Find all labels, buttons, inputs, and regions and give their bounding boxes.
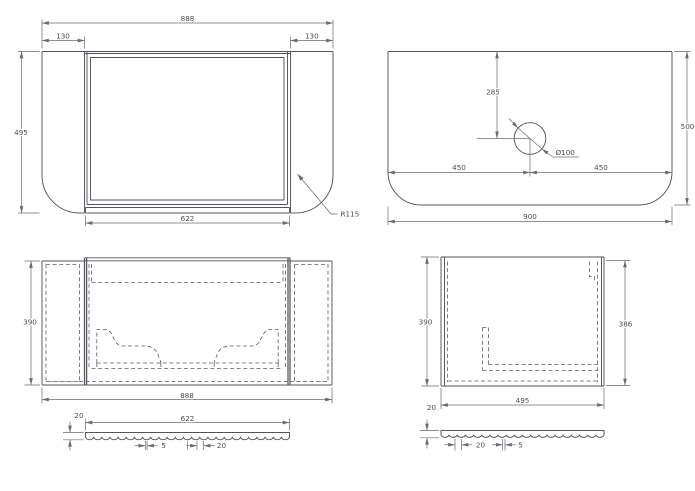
dim-front-left-panel-width: 130 — [56, 31, 70, 40]
dim-side-door-thickness: 20 — [427, 403, 437, 412]
cabinet-plan-view: 390 888 20 622 5 20 — [23, 258, 332, 451]
plan-panel-separators — [85, 258, 291, 385]
side-outline — [441, 257, 604, 386]
dim-front-right-panel-width: 130 — [305, 31, 319, 40]
dim-top-overall-width: 900 — [523, 212, 537, 221]
dim-top-450-left: 450 — [452, 163, 466, 172]
hole-dia-arrow-lower — [542, 149, 553, 157]
side-hidden-lines — [448, 262, 598, 383]
countertop-centerlines — [477, 139, 530, 177]
dim-side-inner-depth: 386 — [619, 320, 633, 329]
countertop-view: 285 Ø100 450 450 900 500 — [388, 52, 695, 226]
dim-top-hole-diameter: Ø100 — [556, 148, 576, 157]
dim-plan-flute-width: 20 — [217, 441, 227, 450]
dim-front-overall-height: 495 — [14, 128, 28, 137]
technical-drawing-page: 888 130 130 495 622 R115 285 Ø100 450 45… — [0, 0, 695, 491]
dim-plan-depth: 390 — [23, 318, 37, 327]
hole-dia-arrow-upper — [509, 119, 518, 129]
front-elevation-view: 888 130 130 495 622 R115 — [14, 14, 359, 227]
dim-top-450-right: 450 — [594, 163, 608, 172]
plan-profile-extension-lines — [63, 419, 290, 451]
dim-plan-door-width: 622 — [181, 414, 195, 423]
dim-plan-door-thickness: 20 — [74, 411, 84, 420]
dim-front-door-width: 622 — [181, 214, 195, 223]
plan-hidden-lines — [46, 264, 328, 382]
dim-top-overall-depth: 500 — [681, 122, 695, 131]
dim-front-overall-width: 888 — [181, 14, 195, 23]
technical-drawing-canvas: 888 130 130 495 622 R115 285 Ø100 450 45… — [0, 0, 695, 491]
dim-side-flute-width: 20 — [476, 441, 486, 450]
dim-side-flute-flat: 5 — [518, 441, 523, 450]
side-section-view: 390 386 495 20 20 5 — [419, 257, 633, 451]
fluted-door-profile-left — [85, 433, 289, 440]
dim-side-depth: 390 — [419, 318, 433, 327]
radius-leader-line — [298, 174, 338, 214]
front-extension-lines — [18, 20, 333, 227]
dim-plan-flute-flat: 5 — [161, 441, 166, 450]
dim-top-hole-offset: 285 — [486, 87, 500, 96]
dim-side-width: 495 — [516, 396, 530, 405]
dim-front-corner-radius: R115 — [341, 210, 360, 219]
dim-plan-width: 888 — [180, 391, 194, 400]
countertop-extension-lines — [388, 52, 691, 226]
side-profile-extension-lines — [420, 431, 505, 451]
fluted-door-profile-right — [441, 431, 604, 438]
front-outline — [42, 52, 333, 214]
countertop-outline — [388, 52, 672, 206]
